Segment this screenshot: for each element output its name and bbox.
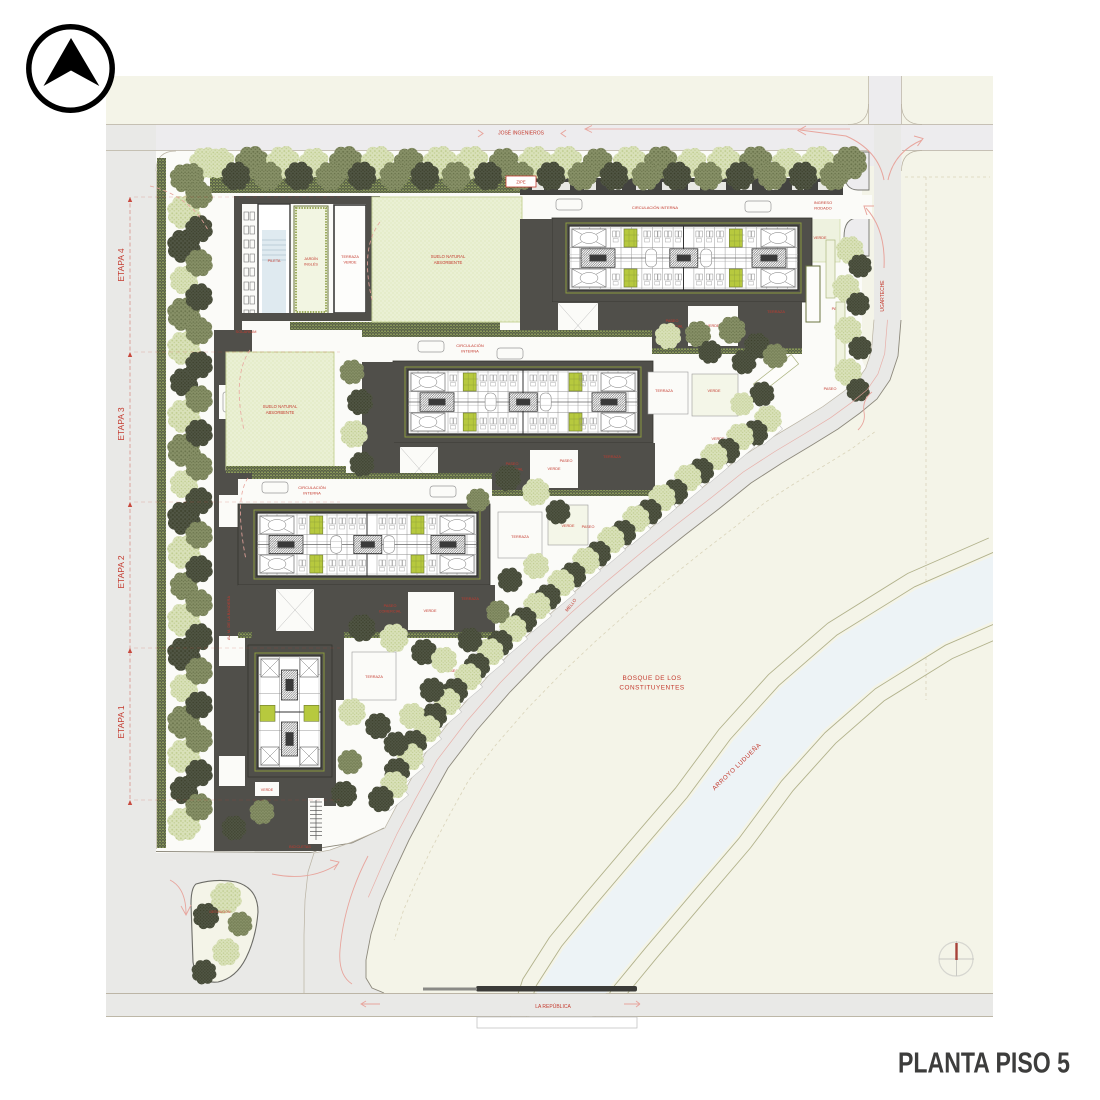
svg-text:ETAPA 1: ETAPA 1 xyxy=(116,705,126,739)
svg-text:CONSTITUYENTES: CONSTITUYENTES xyxy=(619,685,684,692)
svg-text:UGARTECHE: UGARTECHE xyxy=(880,280,886,312)
svg-text:SOLARIUM: SOLARIUM xyxy=(236,329,257,334)
svg-text:ETAPA 4: ETAPA 4 xyxy=(116,248,126,282)
svg-text:TERRAZA: TERRAZA xyxy=(655,389,673,393)
svg-text:PASEO: PASEO xyxy=(582,525,595,529)
svg-text:TERRAZA: TERRAZA xyxy=(603,455,621,459)
svg-text:INTERNA: INTERNA xyxy=(303,491,321,496)
svg-text:PASEO: PASEO xyxy=(824,387,837,391)
svg-text:RODADO: RODADO xyxy=(814,206,832,211)
svg-text:BICICLETAS: BICICLETAS xyxy=(289,845,311,849)
svg-text:VERDE: VERDE xyxy=(343,261,357,265)
svg-text:PLANTA PISO 5: PLANTA PISO 5 xyxy=(898,1048,1070,1080)
svg-text:SUELO NATURAL: SUELO NATURAL xyxy=(263,404,298,409)
svg-text:AV. M. DE LA BANDERA: AV. M. DE LA BANDERA xyxy=(226,596,231,641)
svg-text:JOSÉ INGENIEROS: JOSÉ INGENIEROS xyxy=(498,130,545,137)
svg-text:PASEO: PASEO xyxy=(560,459,573,463)
svg-text:SUELO NATURAL: SUELO NATURAL xyxy=(431,254,466,259)
svg-text:CIRCULACIÓN INTERNA: CIRCULACIÓN INTERNA xyxy=(632,205,679,210)
svg-text:INGRESO: INGRESO xyxy=(814,200,832,205)
svg-text:INGLÉS: INGLÉS xyxy=(304,262,318,267)
svg-text:TERRAZA: TERRAZA xyxy=(511,535,529,539)
svg-text:ETAPA 2: ETAPA 2 xyxy=(116,555,126,589)
svg-text:TERRAZA: TERRAZA xyxy=(461,597,479,601)
svg-text:ABSORBENTE: ABSORBENTE xyxy=(266,410,295,415)
svg-text:CIRCULACIÓN: CIRCULACIÓN xyxy=(456,343,484,348)
svg-text:CIRCULACIÓN: CIRCULACIÓN xyxy=(298,485,326,490)
svg-text:PASEO: PASEO xyxy=(666,319,679,323)
svg-text:PASEO: PASEO xyxy=(384,604,397,608)
svg-text:BOSQUE DE LOS: BOSQUE DE LOS xyxy=(622,675,681,682)
svg-text:VERDE: VERDE xyxy=(547,467,561,471)
svg-text:TERRAZA: TERRAZA xyxy=(365,675,383,679)
svg-text:ZIPE: ZIPE xyxy=(516,180,526,185)
svg-text:VERDE: VERDE xyxy=(561,524,575,528)
svg-text:DESVIACIÓN: DESVIACIÓN xyxy=(210,909,231,914)
svg-text:VERDE: VERDE xyxy=(423,609,437,613)
svg-text:ETAPA 3: ETAPA 3 xyxy=(116,407,126,441)
svg-text:VERDE: VERDE xyxy=(261,788,274,792)
svg-text:TERRAZA: TERRAZA xyxy=(341,255,359,259)
svg-text:INTERNA: INTERNA xyxy=(461,349,479,354)
svg-text:ABSORBENTE: ABSORBENTE xyxy=(434,260,463,265)
svg-text:JARDÍN: JARDÍN xyxy=(304,257,318,261)
svg-text:PILETA: PILETA xyxy=(268,259,281,263)
svg-text:LA REPÚBLICA: LA REPÚBLICA xyxy=(535,1003,571,1010)
svg-text:VERDE: VERDE xyxy=(707,389,721,393)
svg-text:VERDE: VERDE xyxy=(813,236,827,240)
svg-text:TERRAZA: TERRAZA xyxy=(767,310,785,314)
svg-text:COMERCIAL: COMERCIAL xyxy=(379,610,402,614)
